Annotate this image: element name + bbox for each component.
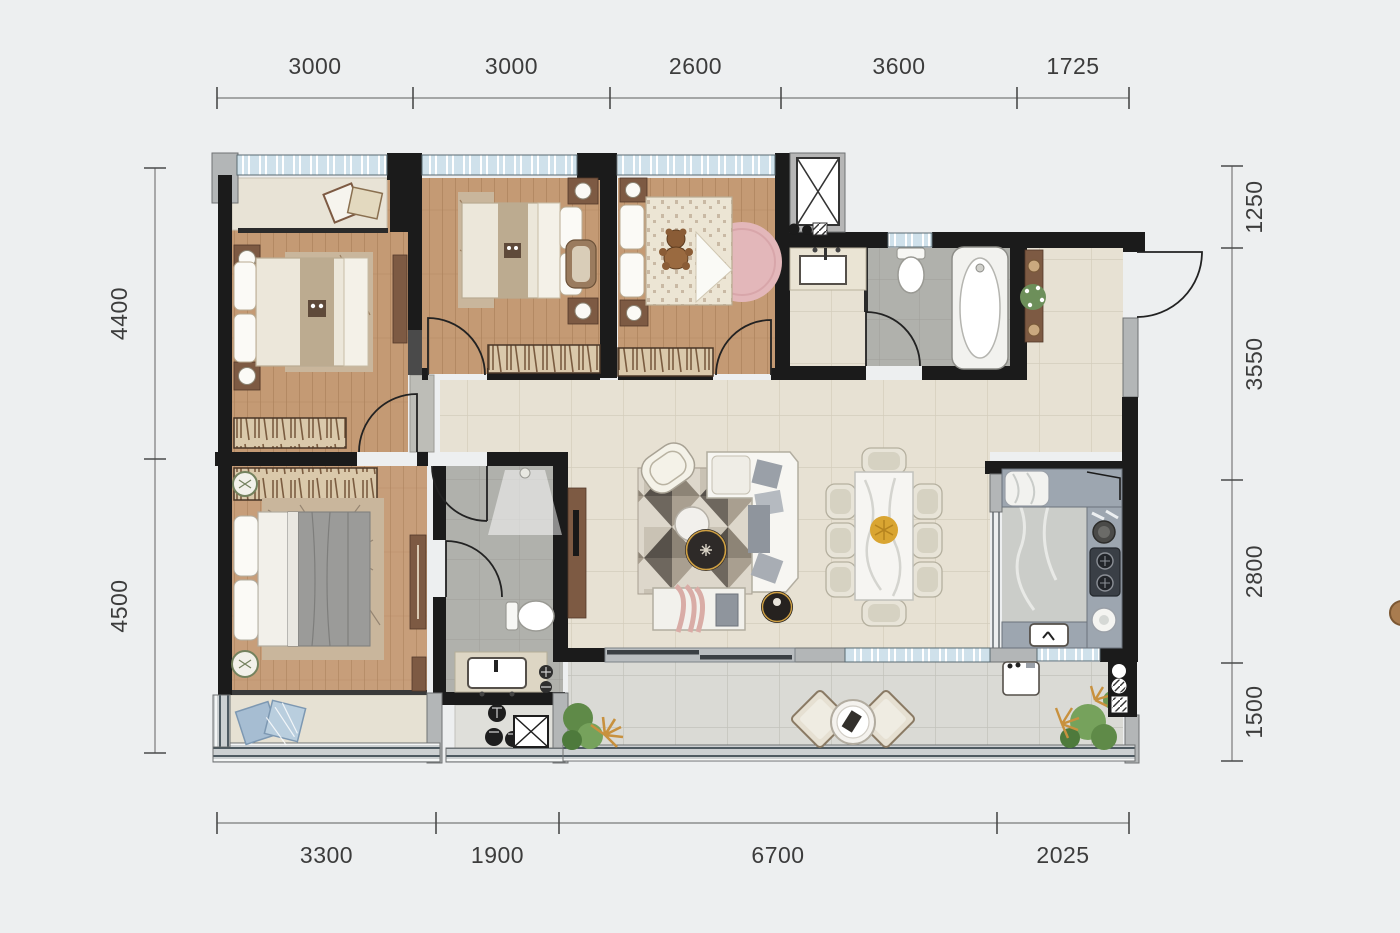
wall-masterbath-bottom: [433, 692, 565, 705]
tap-icon: [485, 728, 503, 746]
wall-bath1-bottom-left: [790, 366, 866, 380]
wall-left: [218, 175, 232, 695]
lamp-icon: [575, 303, 591, 319]
ceiling-light-icon: [520, 468, 530, 478]
pier-kitchen-bottom: [990, 648, 1037, 662]
wall-bed1-bed2: [408, 180, 422, 330]
threshold-stone: [410, 375, 434, 452]
heater-icon: [1112, 664, 1126, 678]
dim-label: 3000: [288, 53, 341, 79]
pier-bed2-bed3: [577, 153, 617, 180]
meter-icon: [789, 224, 800, 235]
dim-label: 1250: [1241, 180, 1267, 233]
dimension-left: 44004500: [106, 168, 166, 753]
bathtub-icon: [952, 247, 1008, 369]
dim-label: 6700: [751, 842, 804, 868]
faucet-icon: [494, 660, 498, 672]
pier-entry-top: [1123, 232, 1145, 252]
dim-label: 4400: [106, 287, 132, 340]
dining-chair: [862, 600, 906, 626]
railing-master-balcony-left: [213, 695, 230, 747]
lamp-icon: [575, 183, 591, 199]
dim-label: 1500: [1241, 685, 1267, 738]
wall-kitchen-left-stub: [990, 474, 1002, 512]
media-bench: [653, 586, 745, 632]
coffee-table: [685, 529, 727, 571]
wall-right-entry: [1123, 318, 1138, 397]
window-kitchen: [1037, 648, 1100, 661]
dim-label: 1900: [471, 842, 524, 868]
railing-terrace: [563, 745, 1135, 761]
kitchen-sliding-door: [993, 512, 999, 648]
dish-icon: [1028, 324, 1040, 336]
floorplan-canvas: 3000300026003600172533001900670020254400…: [0, 0, 1400, 933]
wardrobe-shelf: [234, 418, 346, 448]
wall-bath1-top-right: [932, 232, 1145, 248]
tv-icon: [573, 510, 579, 556]
dim-label: 1725: [1046, 53, 1099, 79]
flower-vase-icon: [1020, 284, 1046, 310]
meter-box-icon: [813, 223, 827, 235]
dimension-top: 30003000260036001725: [217, 53, 1129, 109]
edge-plant-sliver: [1390, 601, 1400, 625]
pier-bed3-right: [775, 153, 790, 180]
dim-label: 2025: [1036, 842, 1089, 868]
master-balcony-sill: [232, 690, 427, 695]
window-dining-south: [845, 648, 990, 662]
utility-column: [1108, 662, 1137, 717]
entry-floor-lower: [1010, 380, 1123, 452]
pier-bed1-bed2: [387, 153, 422, 180]
wall-bed1-bed2-lower: [408, 330, 422, 375]
bench-tray: [716, 594, 738, 626]
dim-label: 3600: [872, 53, 925, 79]
wardrobe-shelf: [618, 348, 713, 376]
dimension-right: 1250355028001500: [1221, 166, 1267, 761]
wardrobe-shelf: [488, 345, 600, 373]
pier-terrace-top: [795, 648, 845, 662]
utility-shaft: [789, 153, 846, 235]
dim-label: 3300: [300, 842, 353, 868]
dimension-bottom: 3300190067002025: [217, 812, 1129, 868]
sofa-throw: [748, 505, 770, 553]
wall-living-south-stub: [568, 648, 605, 662]
sliding-door-terrace: [605, 648, 795, 662]
toilet-icon: [506, 601, 554, 631]
dining-table: [855, 472, 913, 600]
blue-pillow-checkered: [264, 700, 305, 741]
washing-machine-icon: [1003, 662, 1039, 695]
wall-kitchen-bottom-corner: [1100, 647, 1124, 662]
dining-chair: [862, 448, 906, 474]
railing-master-balcony: [213, 743, 440, 762]
dim-label: 2800: [1241, 545, 1267, 598]
window-band-top: [237, 155, 775, 175]
window-bath1: [888, 233, 932, 247]
dresser: [393, 255, 407, 343]
hallway-floor: [440, 380, 1010, 452]
dish-icon: [1028, 260, 1040, 272]
side-table-round: [761, 591, 793, 623]
valve-icon: [1112, 679, 1126, 693]
wall-bed2-bed3: [600, 180, 617, 378]
dresser-small: [412, 657, 426, 691]
sink: [800, 256, 846, 284]
meter-icon: [802, 225, 812, 235]
wall-corridor-2: [417, 452, 428, 466]
dining-chairs-left: [826, 484, 856, 597]
fridge-icon: [1005, 471, 1049, 506]
bed-runner-emblem: [308, 300, 326, 317]
dim-label: 4500: [106, 579, 132, 632]
wall-right-kitchen: [1122, 397, 1138, 662]
wall-masterbath-left-bottom: [433, 597, 446, 695]
door-entry: [1137, 252, 1202, 317]
gas-stove-icon: [1090, 548, 1120, 596]
drain-icon: [976, 264, 984, 272]
bed-runner-emblem: [504, 243, 521, 258]
wall-masterbath-left-top: [433, 466, 446, 540]
floorplan: 3000300026003600172533001900670020254400…: [0, 0, 1400, 933]
wall-tv: [553, 452, 568, 662]
lamp-icon: [627, 306, 642, 321]
meter-box-icon: [1112, 697, 1127, 712]
dining-chairs-right: [912, 484, 942, 597]
armchair-seat: [572, 246, 590, 282]
dim-label: 3000: [485, 53, 538, 79]
pier-bay-right: [390, 180, 408, 232]
lamp-icon: [626, 183, 641, 198]
wall-corridor-1: [215, 452, 357, 466]
terrace-table: [831, 700, 875, 744]
bay-window-sill: [238, 228, 388, 233]
faucet-icon: [824, 248, 827, 260]
toilet-icon: [897, 248, 925, 293]
dim-label: 3550: [1241, 337, 1267, 390]
lamp-icon: [239, 368, 256, 385]
railing-laundry: [446, 748, 565, 762]
dim-label: 2600: [669, 53, 722, 79]
